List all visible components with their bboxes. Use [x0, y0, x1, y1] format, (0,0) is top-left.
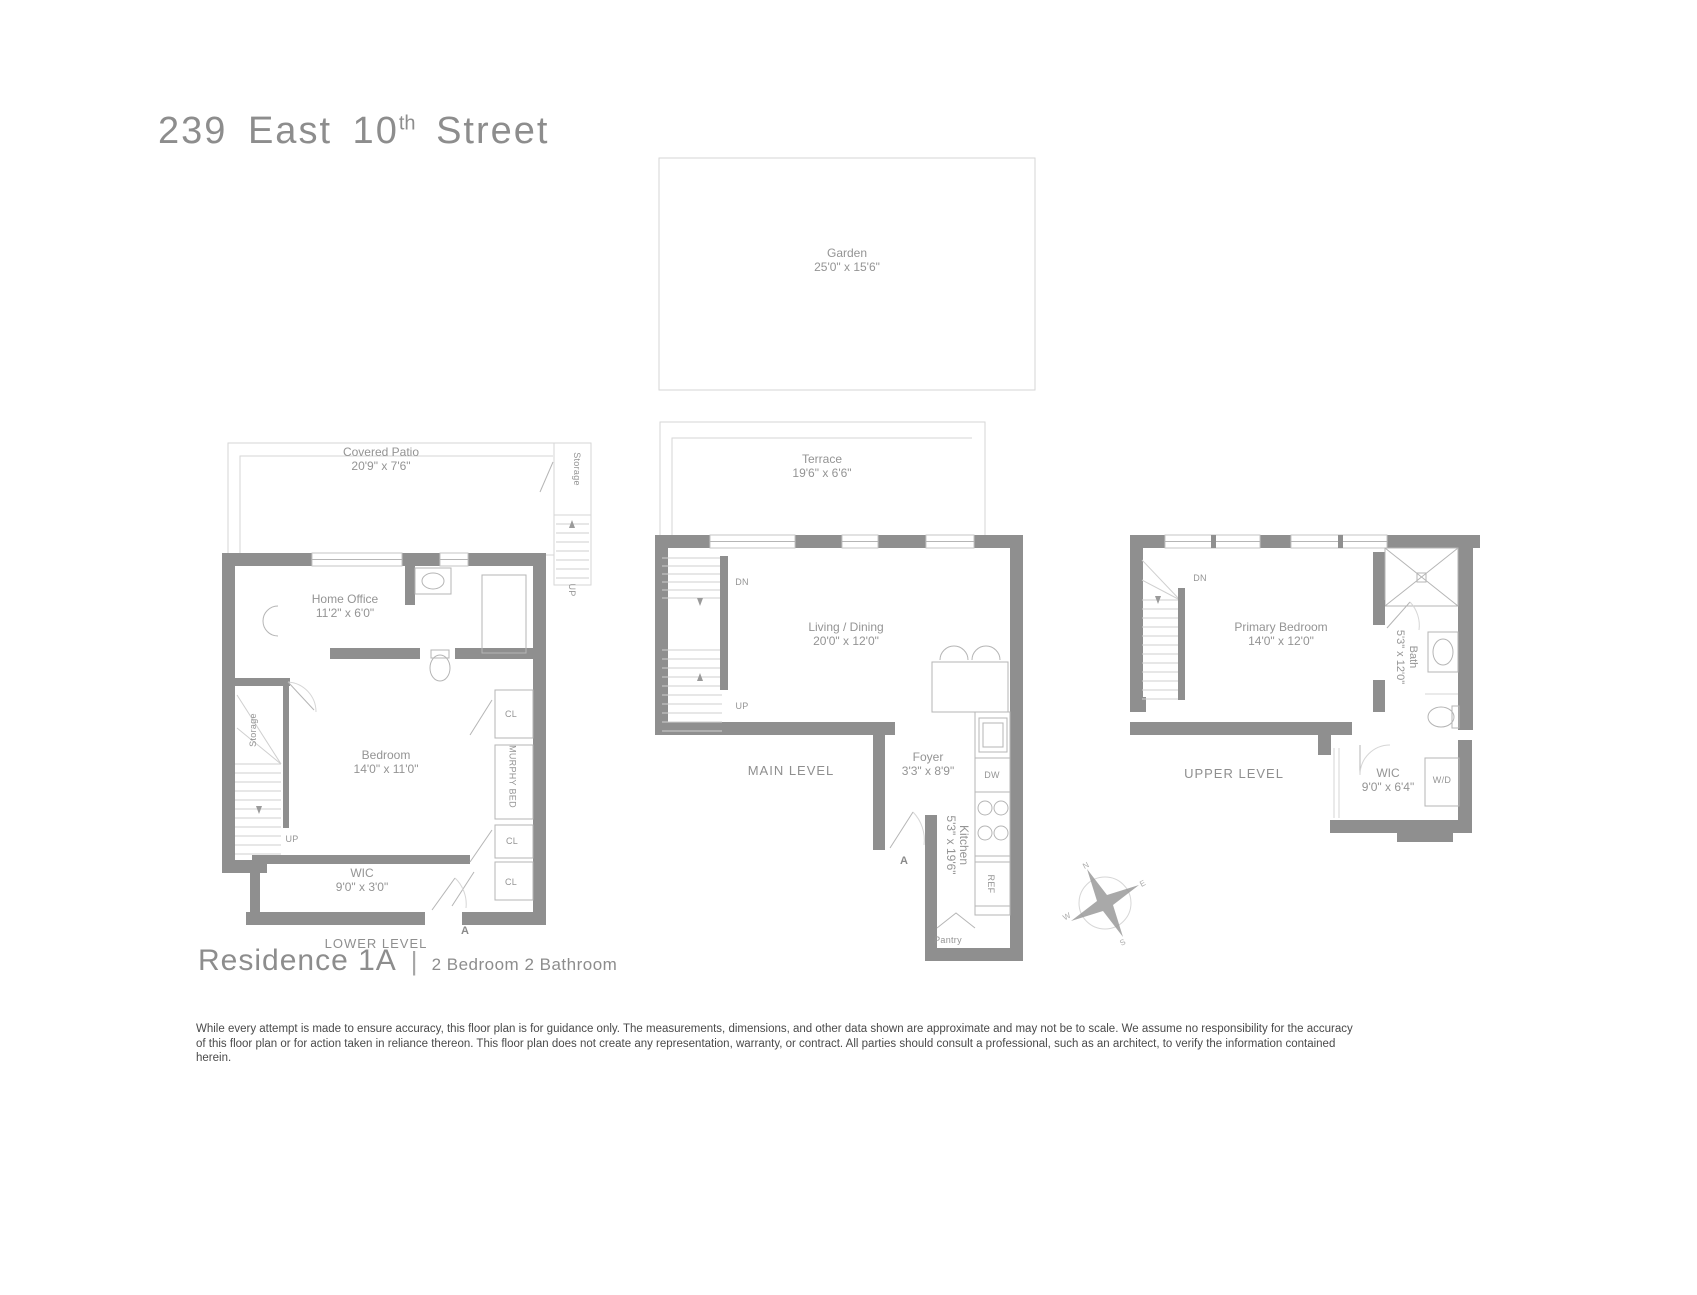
terrace-dims: 19'6" x 6'6": [722, 466, 922, 480]
living-dining-dims: 20'0" x 12'0": [746, 634, 946, 648]
main-level-plan: [655, 158, 1035, 961]
kitchen-peninsula: [932, 662, 1008, 712]
room-label-covered-patio: Covered Patio 20'9" x 7'6": [281, 445, 481, 473]
stool-icon: [940, 646, 968, 660]
pantry-label: Pantry: [926, 935, 970, 945]
pantry-doors: [937, 913, 975, 928]
cl-text-3: CL: [505, 877, 517, 887]
storage-name: Storage: [248, 713, 258, 747]
upper-dn-label: DN: [1188, 573, 1212, 583]
stove-icon: [978, 801, 1008, 840]
closet-label-1: CL: [500, 709, 522, 719]
murphy-bed-label: MURPHY BED: [507, 742, 518, 812]
closet-label-3: CL: [500, 877, 522, 887]
title-prefix: 239 East 10: [158, 110, 399, 152]
residence-name: Residence 1A: [198, 944, 397, 978]
home-office-name: Home Office: [312, 592, 378, 606]
wic-upper-dims: 9'0" x 6'4": [1288, 780, 1488, 794]
lower-up-label: UP: [282, 834, 302, 844]
room-label-home-office: Home Office 11'2" x 6'0": [245, 592, 445, 620]
garden-dims: 25'0" x 15'6": [747, 260, 947, 274]
pantry-text: Pantry: [934, 935, 962, 945]
upper-stairs: [1142, 560, 1180, 699]
toilet-icon: [430, 655, 450, 681]
covered-patio-name: Covered Patio: [343, 445, 419, 459]
foyer-name: Foyer: [913, 750, 944, 764]
room-label-storage: Storage: [248, 700, 258, 760]
primary-bedroom-name: Primary Bedroom: [1234, 620, 1327, 634]
upper-dn-text: DN: [1193, 573, 1207, 583]
home-office-dims: 11'2" x 6'0": [245, 606, 445, 620]
bath-name: Bath: [1407, 646, 1419, 669]
sink-icon: [415, 568, 451, 594]
primary-bedroom-dims: 14'0" x 12'0": [1181, 634, 1381, 648]
building-title: 239 East 10th Street: [158, 110, 549, 153]
main-level-text: MAIN LEVEL: [748, 763, 835, 778]
wic-lower-name: WIC: [350, 866, 373, 880]
patio-storage-name: Storage: [572, 452, 582, 486]
room-label-wic-lower: WIC 9'0" x 3'0": [262, 866, 462, 894]
patio-up-text: UP: [567, 583, 577, 596]
main-up-text: UP: [735, 701, 748, 711]
residence-subtitle: 2 Bedroom 2 Bathroom: [432, 955, 618, 975]
cl-text-1: CL: [505, 709, 517, 719]
washer-dryer-label: W/D: [1428, 775, 1456, 785]
residence-title-row: Residence 1A | 2 Bedroom 2 Bathroom: [198, 944, 617, 978]
title-suffix: Street: [416, 110, 550, 152]
bath-dims: 5'3" x 12'0": [1393, 607, 1406, 707]
patio-up-label: UP: [567, 580, 577, 600]
entry-marker-main-text: A: [900, 855, 908, 867]
garden-name: Garden: [827, 246, 867, 260]
disclaimer-text: While every attempt is made to ensure ac…: [196, 1022, 1364, 1066]
closet-unit: [482, 575, 526, 653]
room-label-bath: Bath 5'3" x 12'0": [1393, 607, 1419, 707]
kitchen-name: Kitchen: [957, 825, 971, 865]
entry-marker-lower: A: [458, 925, 472, 937]
dw-text: DW: [984, 770, 1000, 780]
room-label-primary-bedroom: Primary Bedroom 14'0" x 12'0": [1181, 620, 1381, 648]
closet-label-2: CL: [501, 836, 523, 846]
lower-level-plan: [222, 443, 591, 925]
room-label-garden: Garden 25'0" x 15'6": [747, 246, 947, 274]
room-label-wic-upper: WIC 9'0" x 6'4": [1288, 766, 1488, 794]
title-superscript: th: [399, 112, 416, 134]
living-dining-name: Living / Dining: [808, 620, 883, 634]
entry-marker-lower-text: A: [461, 925, 469, 937]
upper-level-plan: [1130, 535, 1480, 842]
toilet-icon-upper: [1428, 707, 1454, 727]
terrace-name: Terrace: [802, 452, 842, 466]
dishwasher-label: DW: [978, 770, 1006, 780]
bedroom-name: Bedroom: [362, 748, 411, 762]
wic-lower-dims: 9'0" x 3'0": [262, 880, 462, 894]
main-dn-label: DN: [730, 577, 754, 587]
cl-text-2: CL: [506, 836, 518, 846]
ref-text: REF: [986, 875, 996, 894]
garden-outline: [659, 158, 1035, 390]
entry-marker-main: A: [897, 855, 911, 867]
room-label-patio-storage: Storage: [572, 439, 582, 499]
residence-separator: |: [411, 946, 418, 977]
kitchen-dims: 5'3" x 19'6": [944, 790, 957, 900]
main-stairs: [662, 558, 722, 731]
lower-up-text: UP: [285, 834, 298, 844]
floorplan-page: 239 East 10th Street Covered Patio 20'9"…: [0, 0, 1697, 1295]
main-dn-text: DN: [735, 577, 749, 587]
room-label-bedroom: Bedroom 14'0" x 11'0": [286, 748, 486, 776]
main-up-label: UP: [730, 701, 754, 711]
wd-text: W/D: [1433, 775, 1451, 785]
covered-patio-dims: 20'9" x 7'6": [281, 459, 481, 473]
room-label-terrace: Terrace 19'6" x 6'6": [722, 452, 922, 480]
room-label-living-dining: Living / Dining 20'0" x 12'0": [746, 620, 946, 648]
bedroom-dims: 14'0" x 11'0": [286, 762, 486, 776]
room-label-kitchen: Kitchen 5'3" x 19'6": [944, 790, 970, 900]
refrigerator-label: REF: [986, 867, 996, 901]
wic-upper-name: WIC: [1376, 766, 1399, 780]
murphy-bed-text: MURPHY BED: [508, 745, 518, 808]
compass-rose: [1071, 869, 1139, 937]
main-level-label: MAIN LEVEL: [691, 763, 891, 778]
stool-icon: [972, 646, 1000, 660]
upper-level-text: UPPER LEVEL: [1184, 766, 1284, 781]
